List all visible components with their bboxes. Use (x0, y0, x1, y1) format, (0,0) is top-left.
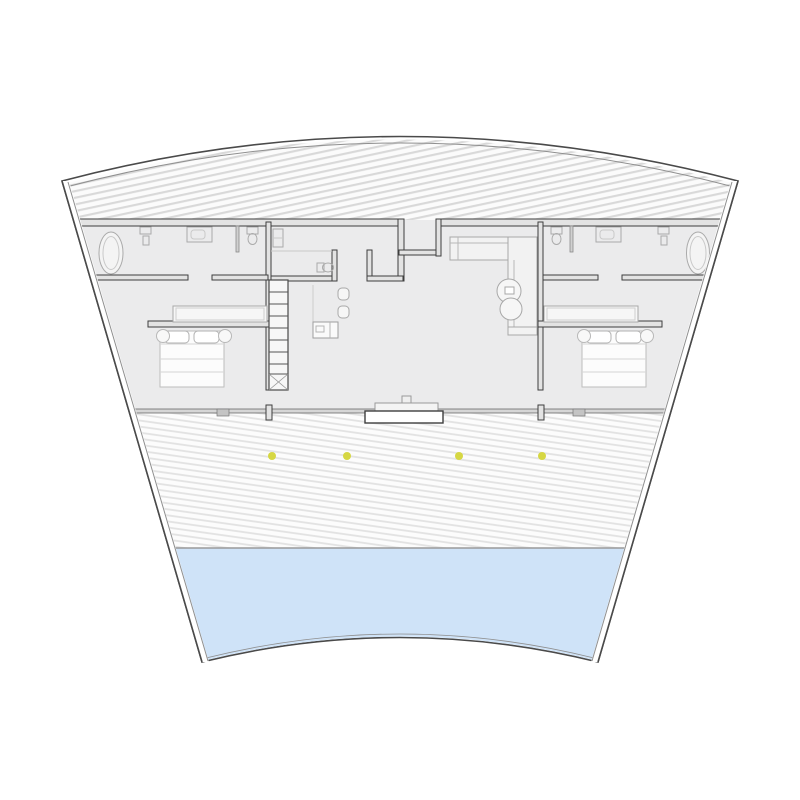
nightstand-left-1 (157, 330, 170, 343)
stairs-outline (269, 280, 288, 390)
wall-bath-left-a (92, 275, 188, 280)
nightstand-left-2 (219, 330, 232, 343)
wall-notch-bottom (399, 250, 441, 255)
entry-step-lower (365, 411, 443, 423)
nightstand-right-1 (578, 330, 591, 343)
terrace-light-1 (268, 452, 276, 460)
terrace-light-4 (538, 452, 546, 460)
desk (313, 322, 338, 338)
pool (171, 548, 629, 661)
desk-chair-2 (338, 306, 349, 318)
terrace-light-2 (343, 452, 351, 460)
wall-bath-right-b (622, 275, 707, 280)
wall-top-left (77, 219, 403, 226)
round-table-center (505, 287, 514, 294)
wall-bath-right-a (543, 275, 598, 280)
pillow-right-2 (616, 331, 641, 343)
divider-left (236, 226, 239, 252)
wall-vertical-right (538, 222, 543, 390)
terrace (132, 412, 668, 548)
terrace-light-3 (455, 452, 463, 460)
divider-right (570, 226, 573, 252)
facade-mullion-left (266, 405, 272, 420)
pillow-left-2 (194, 331, 219, 343)
wall-notch-right (436, 219, 441, 256)
floor-plan-image (0, 0, 800, 800)
floor-plan-svg (0, 0, 800, 800)
facade-mullion-right (538, 405, 544, 420)
wall-bath-left-b (212, 275, 268, 280)
desk-chair-1 (338, 288, 349, 300)
facade-door-right (573, 409, 585, 416)
stairs (269, 280, 288, 390)
wall-top-right (437, 219, 723, 226)
sofa-end-cap (508, 327, 537, 335)
facade-door-left (217, 409, 229, 416)
round-table-lower (500, 298, 522, 320)
nightstand-right-2 (641, 330, 654, 343)
wall-closet-bottom (367, 276, 403, 281)
